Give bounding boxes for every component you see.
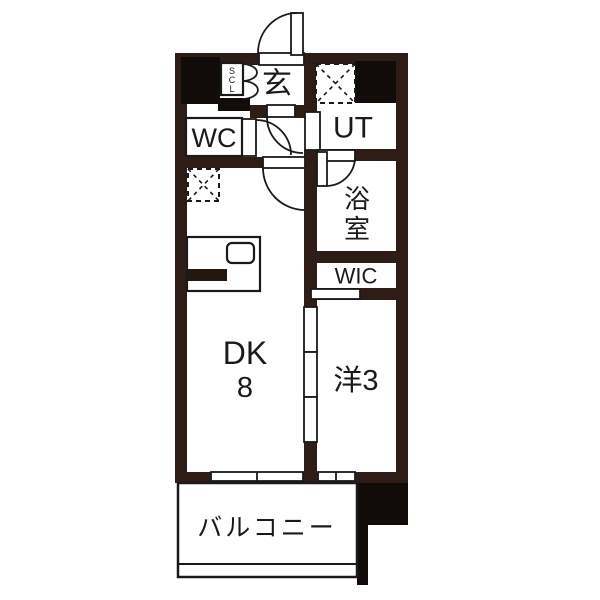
- windows: [211, 472, 355, 481]
- wc-door-leaf: [242, 119, 256, 156]
- partition-panel-1: [304, 307, 317, 352]
- wall-bath-wic: [304, 251, 408, 263]
- hall-dk-door-arc: [263, 168, 305, 210]
- label-genkan: 玄: [262, 68, 292, 101]
- floor-plan-svg: 玄 S C L WC UT 浴 室 WIC DK 8 洋3 バルコニー: [0, 0, 600, 600]
- bath-door-arc: [327, 158, 355, 186]
- wall-center-vertical: [304, 150, 317, 307]
- pillar-top-right: [355, 61, 396, 103]
- partition-panel-2: [304, 352, 317, 397]
- label-ut: UT: [333, 112, 373, 145]
- label-dk: DK: [223, 335, 267, 371]
- kitchen-sink: [227, 243, 254, 263]
- label-bath-char2: 室: [344, 214, 370, 244]
- refrigerator-space-box: [188, 169, 219, 201]
- label-bath-char1: 浴: [344, 184, 370, 214]
- hall-dk-door-leaf: [263, 157, 305, 168]
- label-western-room: 洋3: [333, 364, 378, 397]
- shoe-closet-door-arcs: [242, 64, 258, 99]
- partition-panel-3: [304, 397, 317, 442]
- label-wc: WC: [192, 123, 237, 153]
- wic-doorway: [311, 289, 360, 299]
- pillar-top-left: [181, 57, 220, 104]
- entrance-door-leaf: [291, 13, 303, 55]
- label-wic: WIC: [335, 264, 378, 289]
- label-balcony: バルコニー: [197, 514, 337, 542]
- floor-plan-canvas: 玄 S C L WC UT 浴 室 WIC DK 8 洋3 バルコニー: [0, 0, 600, 600]
- label-scl-l: L: [229, 84, 234, 94]
- bath-door-leaf: [317, 152, 327, 186]
- shoe-cabinet-base: [218, 98, 250, 111]
- genkan-hall-door-leaf: [267, 105, 295, 117]
- ut-sliding-door-leaf: [305, 112, 320, 150]
- kitchen-counter: [187, 237, 260, 291]
- wall-right: [396, 53, 408, 483]
- balcony-side-wall: [357, 483, 368, 585]
- wall-center-vertical-lower: [304, 442, 317, 473]
- wall-genkan-hall-left: [250, 105, 267, 118]
- kitchen-counter-bar: [188, 269, 227, 281]
- label-dk-size: 8: [237, 372, 253, 404]
- room-labels: 玄 S C L WC UT 浴 室 WIC DK 8 洋3 バルコニー: [192, 66, 379, 542]
